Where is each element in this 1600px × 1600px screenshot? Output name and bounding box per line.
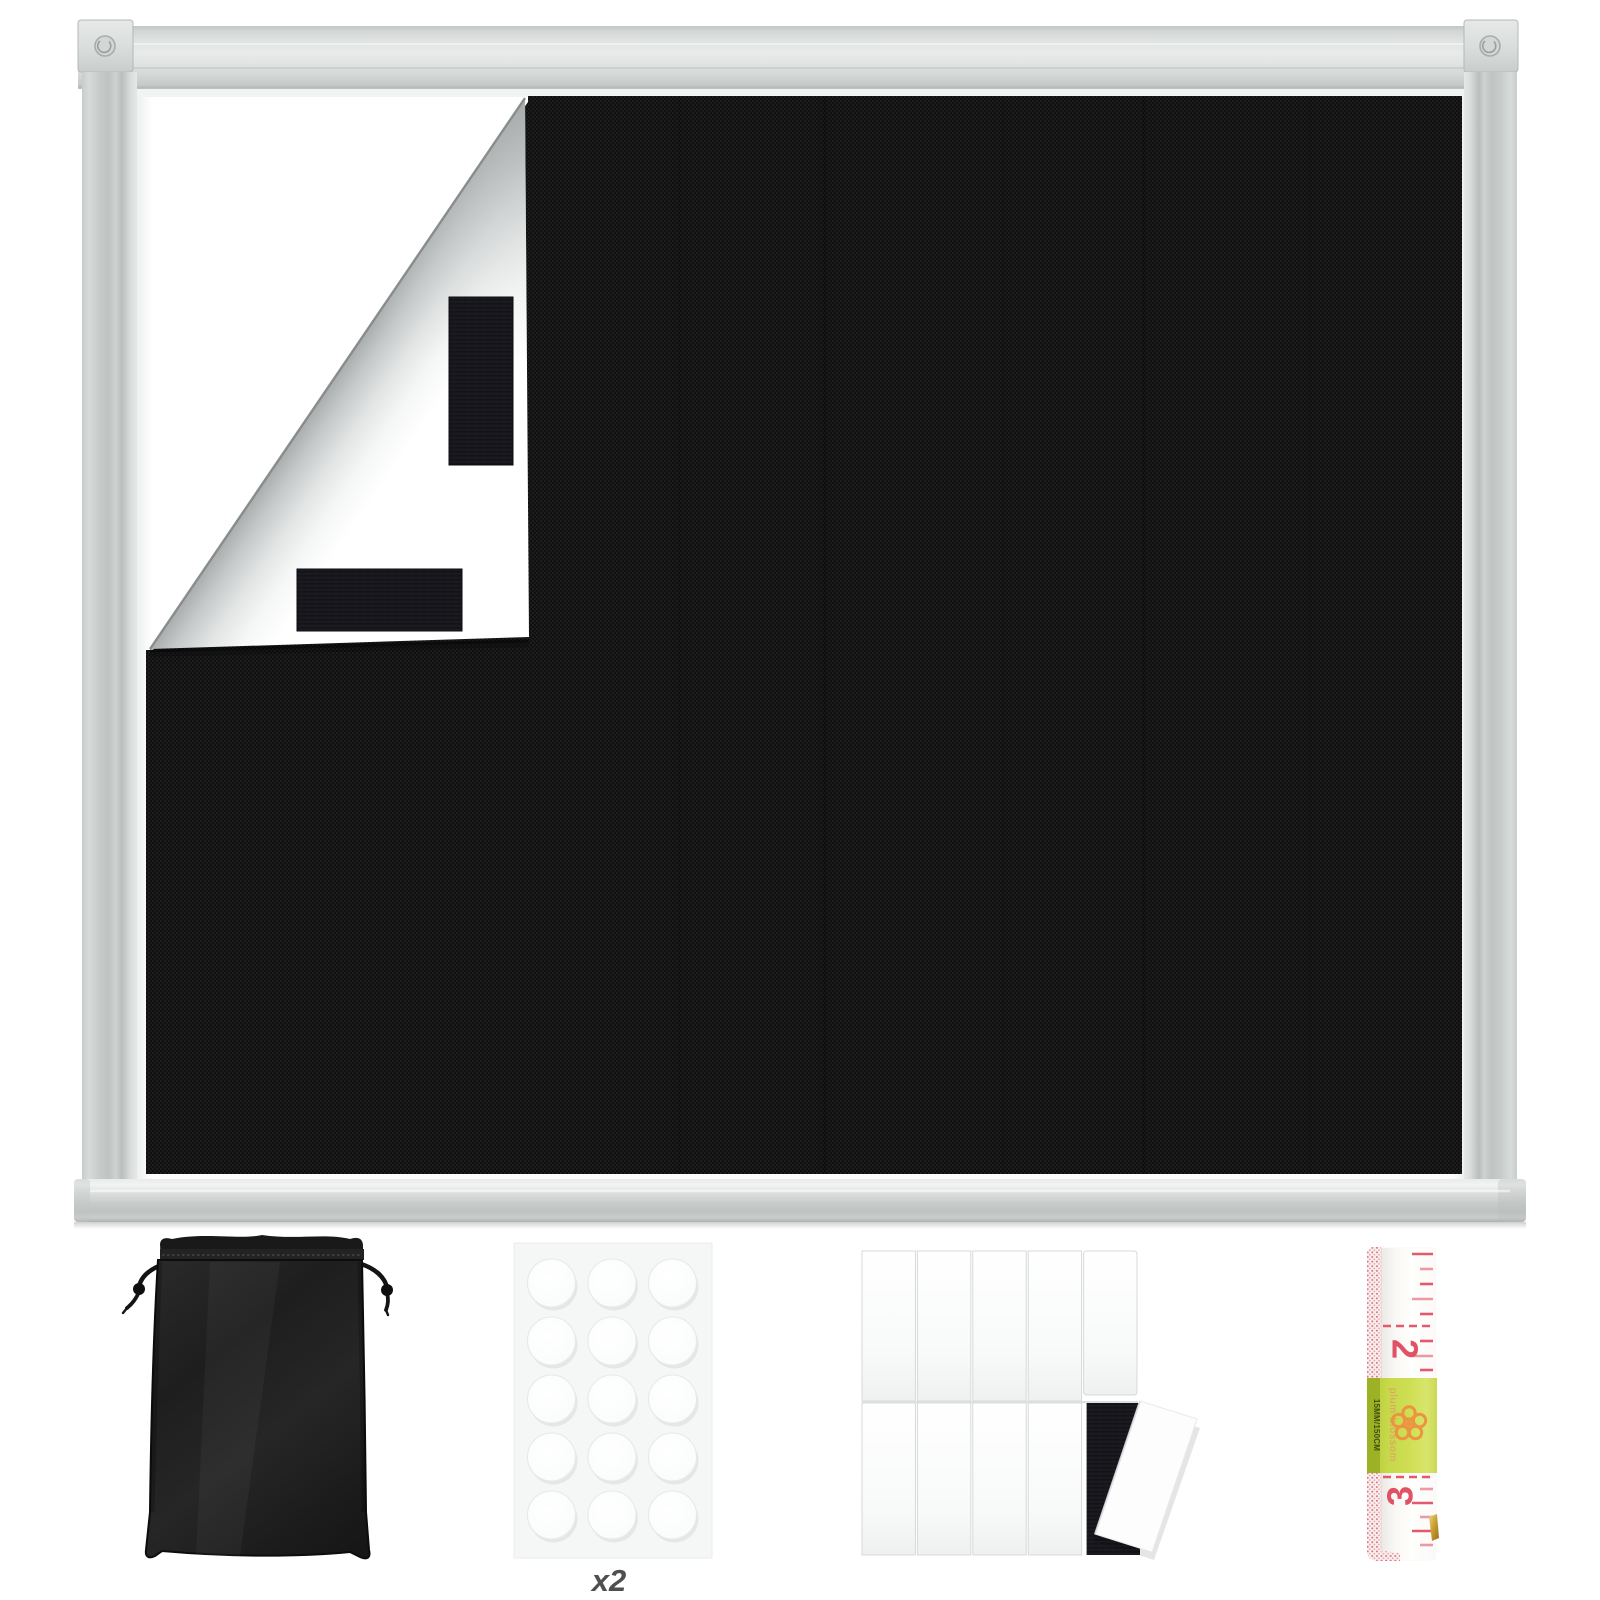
svg-text:3: 3 — [1380, 1486, 1421, 1506]
svg-text:x2: x2 — [590, 1563, 626, 1598]
svg-text:2: 2 — [1384, 1339, 1425, 1359]
svg-text:15MM/150CM: 15MM/150CM — [1372, 1399, 1381, 1451]
